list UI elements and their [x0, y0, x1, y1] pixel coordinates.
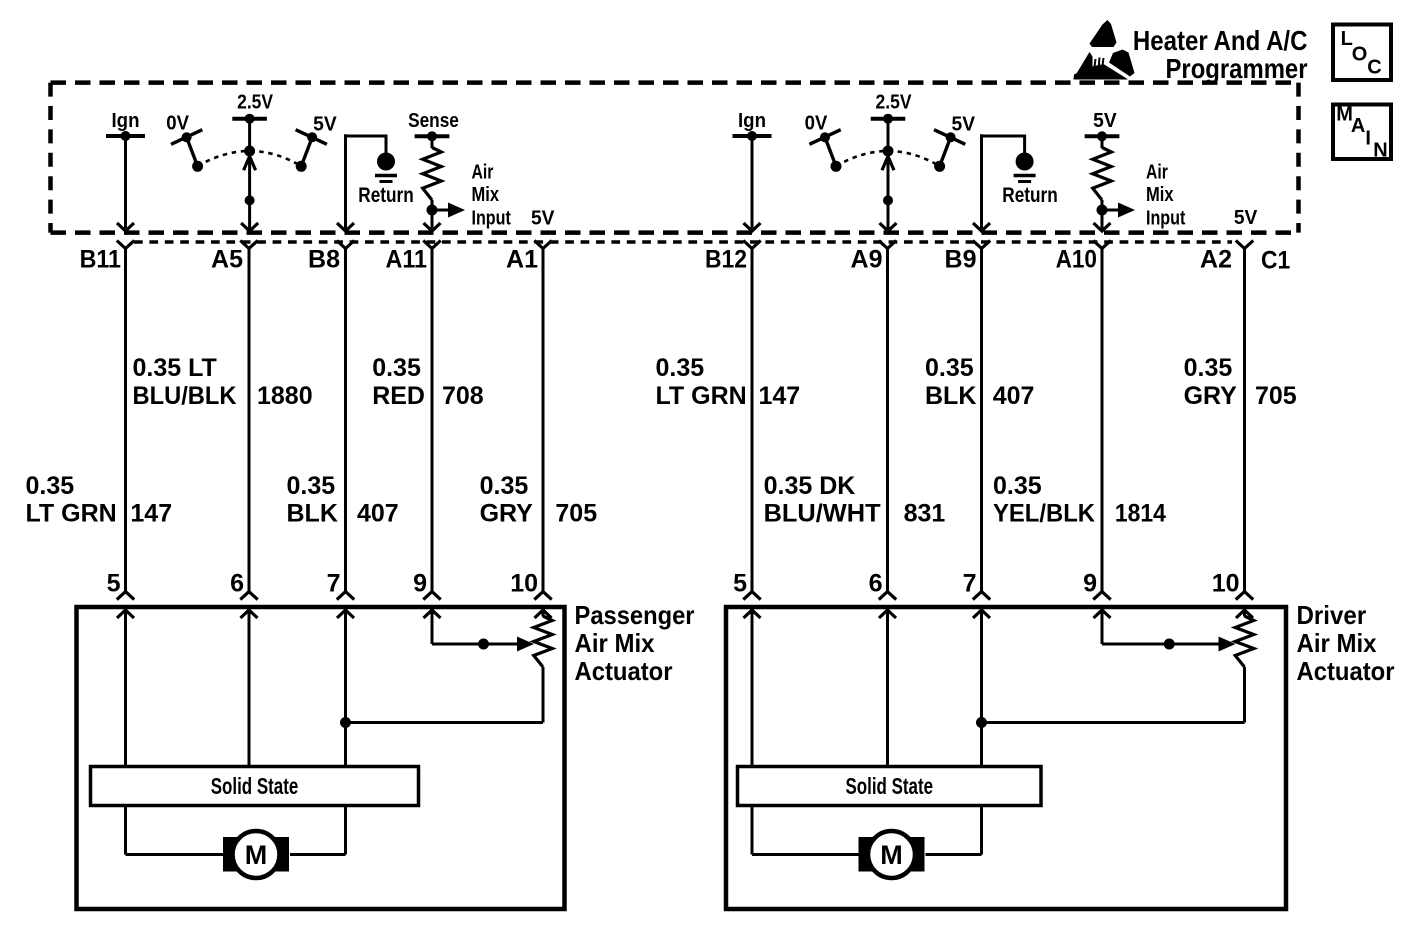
svg-text:5V: 5V [313, 113, 337, 135]
svg-text:Air Mix: Air Mix [1297, 628, 1377, 658]
svg-text:A5: A5 [211, 245, 243, 273]
svg-text:10: 10 [510, 570, 538, 598]
svg-text:705: 705 [1255, 382, 1297, 410]
svg-text:0.35: 0.35 [993, 472, 1042, 500]
svg-text:705: 705 [555, 499, 597, 527]
svg-text:Driver: Driver [1297, 600, 1367, 630]
svg-text:Solid State: Solid State [846, 773, 934, 799]
svg-text:B8: B8 [308, 245, 340, 273]
svg-text:A2: A2 [1200, 245, 1232, 273]
svg-text:Return: Return [358, 184, 414, 207]
svg-text:407: 407 [993, 382, 1035, 410]
svg-text:Air: Air [1146, 161, 1168, 183]
svg-text:A10: A10 [1056, 245, 1097, 273]
svg-text:6: 6 [230, 570, 244, 598]
svg-text:0.35: 0.35 [925, 354, 974, 382]
svg-text:708: 708 [442, 382, 484, 410]
svg-text:0.35: 0.35 [480, 472, 529, 500]
svg-text:5V: 5V [1234, 207, 1258, 229]
svg-text:Solid State: Solid State [211, 773, 299, 799]
svg-text:0.35: 0.35 [372, 354, 421, 382]
svg-text:N: N [1373, 140, 1387, 162]
svg-text:BLK: BLK [925, 382, 976, 410]
svg-text:407: 407 [357, 499, 399, 527]
svg-text:BLK: BLK [287, 499, 338, 527]
svg-text:BLU/WHT: BLU/WHT [764, 499, 881, 527]
svg-text:A9: A9 [851, 245, 883, 273]
svg-text:Ign: Ign [738, 110, 766, 132]
svg-text:B9: B9 [945, 245, 977, 273]
svg-text:LT GRN: LT GRN [656, 382, 747, 410]
svg-text:Return: Return [1002, 184, 1058, 207]
svg-text:Input: Input [472, 207, 512, 229]
svg-text:Programmer: Programmer [1166, 53, 1308, 84]
svg-text:5: 5 [733, 570, 747, 598]
svg-text:Heater And A/C: Heater And A/C [1133, 25, 1308, 56]
svg-text:6: 6 [869, 570, 883, 598]
svg-text:Mix: Mix [472, 184, 500, 206]
svg-text:Air: Air [472, 161, 494, 183]
svg-text:GRY: GRY [1184, 382, 1238, 410]
svg-text:Mix: Mix [1146, 184, 1174, 206]
svg-text:0.35: 0.35 [26, 472, 75, 500]
svg-text:O: O [1352, 44, 1368, 66]
svg-text:GRY: GRY [480, 499, 534, 527]
svg-text:0.35: 0.35 [1184, 354, 1233, 382]
svg-text:1814: 1814 [1115, 499, 1166, 527]
svg-text:LT GRN: LT GRN [26, 499, 117, 527]
svg-text:5V: 5V [1093, 110, 1117, 132]
svg-text:0.35 LT: 0.35 LT [133, 354, 217, 382]
svg-text:0V: 0V [805, 112, 828, 134]
svg-text:C: C [1367, 57, 1381, 79]
svg-text:M: M [880, 840, 903, 870]
svg-text:0.35 DK: 0.35 DK [764, 472, 856, 500]
svg-text:YEL/BLK: YEL/BLK [993, 499, 1095, 527]
svg-text:7: 7 [327, 570, 341, 598]
svg-text:5V: 5V [531, 208, 555, 230]
svg-text:M: M [245, 840, 268, 870]
svg-text:10: 10 [1212, 570, 1240, 598]
svg-text:Ign: Ign [112, 110, 140, 132]
svg-text:Actuator: Actuator [575, 656, 673, 686]
svg-text:9: 9 [1083, 570, 1097, 598]
svg-text:5V: 5V [952, 113, 976, 135]
svg-text:0.35: 0.35 [656, 354, 705, 382]
svg-text:0V: 0V [166, 112, 189, 134]
svg-text:A1: A1 [506, 245, 538, 273]
svg-text:0.35: 0.35 [287, 472, 336, 500]
svg-text:B12: B12 [705, 245, 747, 273]
svg-text:Actuator: Actuator [1297, 656, 1395, 686]
svg-text:831: 831 [904, 499, 946, 527]
svg-text:7: 7 [963, 570, 977, 598]
svg-text:1880: 1880 [257, 382, 313, 410]
svg-text:Sense: Sense [408, 110, 459, 132]
svg-text:Passenger: Passenger [575, 600, 695, 630]
svg-text:A: A [1351, 115, 1365, 137]
svg-text:Air Mix: Air Mix [575, 628, 655, 658]
svg-text:RED: RED [372, 382, 425, 410]
svg-text:2.5V: 2.5V [876, 92, 913, 114]
svg-text:147: 147 [759, 382, 801, 410]
svg-text:I: I [1365, 128, 1371, 150]
svg-text:Input: Input [1146, 207, 1186, 229]
svg-text:9: 9 [413, 570, 427, 598]
svg-text:5: 5 [107, 570, 121, 598]
svg-text:B11: B11 [80, 245, 121, 273]
svg-text:BLU/BLK: BLU/BLK [133, 382, 237, 410]
svg-text:2.5V: 2.5V [237, 92, 274, 114]
svg-text:147: 147 [130, 499, 172, 527]
svg-text:A11: A11 [386, 245, 428, 273]
svg-text:C1: C1 [1261, 247, 1290, 275]
